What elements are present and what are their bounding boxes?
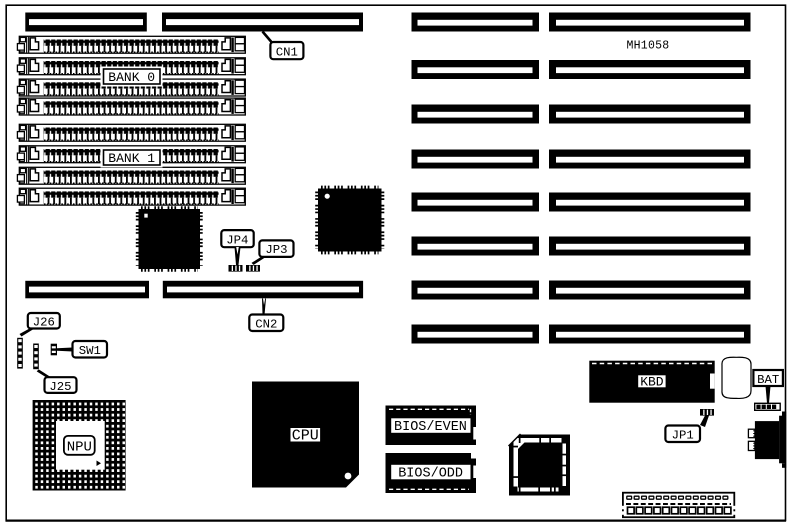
svg-text:SW1: SW1 bbox=[79, 344, 101, 358]
svg-text:BAT: BAT bbox=[757, 373, 779, 387]
svg-text:CPU: CPU bbox=[292, 428, 319, 445]
svg-text:BANK 0: BANK 0 bbox=[108, 70, 155, 85]
svg-text:KBD: KBD bbox=[640, 374, 664, 389]
svg-text:BIOS/EVEN: BIOS/EVEN bbox=[394, 420, 467, 435]
svg-text:BIOS/ODD: BIOS/ODD bbox=[398, 467, 463, 482]
svg-text:NPU: NPU bbox=[67, 440, 92, 456]
svg-text:CN2: CN2 bbox=[255, 318, 277, 332]
svg-text:JP3: JP3 bbox=[265, 243, 287, 257]
svg-text:J25: J25 bbox=[49, 380, 71, 394]
svg-text:MH1058: MH1058 bbox=[627, 39, 670, 52]
svg-text:JP1: JP1 bbox=[672, 429, 694, 443]
svg-text:BANK 1: BANK 1 bbox=[108, 151, 155, 166]
svg-text:J26: J26 bbox=[33, 316, 55, 330]
svg-text:CN1: CN1 bbox=[276, 45, 298, 59]
svg-text:JP4: JP4 bbox=[226, 233, 248, 247]
